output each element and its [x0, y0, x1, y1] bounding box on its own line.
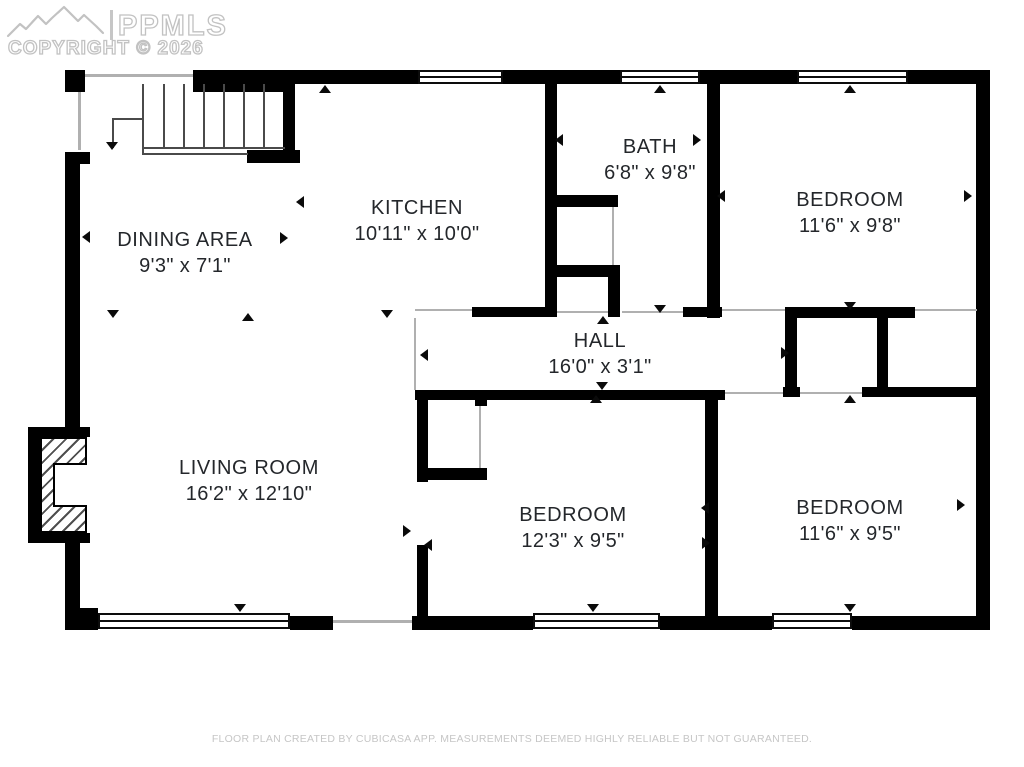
door-arrow-icon [717, 190, 725, 202]
window-pane-line [622, 76, 698, 78]
window-pane-line [420, 76, 501, 78]
room-name: BATH [550, 134, 750, 160]
wall-segment [852, 616, 990, 630]
room-label-bedroom-top-right: BEDROOM 11'6" x 9'8" [750, 187, 950, 239]
wall-segment [65, 70, 85, 92]
window [797, 70, 908, 84]
room-name: LIVING ROOM [148, 455, 350, 481]
stairs-icon [263, 84, 265, 147]
door-arrow-icon [242, 313, 254, 321]
opening-line [333, 620, 412, 623]
window [772, 613, 852, 629]
door-arrow-icon [844, 604, 856, 612]
door-arrow-icon [106, 142, 118, 150]
wall-segment [412, 616, 533, 630]
room-dimensions: 9'3" x 7'1" [85, 253, 285, 279]
room-dimensions: 6'8" x 9'8" [550, 160, 750, 186]
opening-line [78, 92, 81, 150]
room-name: KITCHEN [317, 195, 517, 221]
room-label-bedroom-bottom-right: BEDROOM 11'6" x 9'5" [750, 495, 950, 547]
opening-line [479, 406, 481, 468]
opening-line [557, 311, 608, 313]
wall-segment [545, 84, 557, 308]
stairs-icon [112, 118, 144, 120]
wall-segment [65, 152, 90, 164]
room-dimensions: 10'11" x 10'0" [317, 221, 517, 247]
footer-disclaimer: FLOOR PLAN CREATED BY CUBICASA APP. MEAS… [0, 733, 1024, 745]
window-pane-line [799, 76, 906, 78]
door-arrow-icon [234, 604, 246, 612]
stairs-icon [163, 84, 165, 147]
door-arrow-icon [403, 525, 411, 537]
room-name: BEDROOM [473, 502, 673, 528]
door-arrow-icon [555, 134, 563, 146]
wall-segment [608, 265, 620, 317]
room-name: HALL [500, 328, 700, 354]
opening-line [915, 309, 977, 311]
door-arrow-icon [420, 349, 428, 361]
door-arrow-icon [693, 134, 701, 146]
copyright-text: COPYRIGHT © 2026 [8, 38, 204, 60]
wall-segment [28, 427, 40, 543]
floor-plan-canvas: PPMLS COPYRIGHT © 2026 DINING AREA 9'3" … [0, 0, 1024, 767]
window [620, 70, 700, 84]
logo-divider [110, 10, 113, 40]
stairs-icon [223, 84, 225, 147]
door-arrow-icon [701, 502, 709, 514]
door-arrow-icon [654, 305, 666, 313]
opening-line [415, 309, 472, 311]
window [98, 613, 290, 629]
wall-segment [700, 70, 797, 84]
mountain-logo-icon [6, 4, 106, 38]
door-arrow-icon [296, 196, 304, 208]
door-arrow-icon [844, 85, 856, 93]
door-arrow-icon [82, 231, 90, 243]
door-arrow-icon [381, 310, 393, 318]
window-pane-line [774, 620, 850, 622]
wall-segment [683, 307, 722, 317]
door-arrow-icon [844, 395, 856, 403]
opening-line [725, 392, 783, 394]
wall-segment [877, 318, 888, 390]
door-arrow-icon [424, 539, 432, 551]
room-dimensions: 11'6" x 9'5" [750, 521, 950, 547]
room-dimensions: 12'3" x 9'5" [473, 528, 673, 554]
door-arrow-icon [964, 190, 972, 202]
wall-segment [65, 152, 80, 427]
wall-segment [472, 307, 557, 317]
stairs-icon [203, 84, 205, 147]
wall-segment [415, 390, 725, 400]
wall-segment [65, 543, 80, 616]
window-pane-line [535, 620, 658, 622]
opening-line [800, 392, 862, 394]
wall-segment [193, 70, 418, 84]
room-name: BEDROOM [750, 495, 950, 521]
window [533, 613, 660, 629]
door-arrow-icon [587, 604, 599, 612]
room-label-dining-area: DINING AREA 9'3" x 7'1" [85, 227, 285, 279]
opening-line [612, 207, 614, 265]
watermark: PPMLS COPYRIGHT © 2026 [6, 4, 326, 43]
stairs-icon [142, 147, 285, 149]
door-arrow-icon [280, 232, 288, 244]
room-label-bedroom-middle: BEDROOM 12'3" x 9'5" [473, 502, 673, 554]
room-label-kitchen: KITCHEN 10'11" x 10'0" [317, 195, 517, 247]
wall-segment [417, 545, 428, 616]
room-name: DINING AREA [85, 227, 285, 253]
door-arrow-icon [319, 85, 331, 93]
wall-segment [475, 398, 487, 406]
room-label-hall: HALL 16'0" x 3'1" [500, 328, 700, 380]
wall-segment [28, 533, 90, 543]
stairs-icon [142, 153, 248, 155]
wall-segment [290, 616, 333, 630]
wall-segment [976, 70, 990, 630]
opening-line [85, 74, 193, 77]
wall-segment [783, 387, 800, 397]
wall-segment [417, 468, 487, 480]
room-label-living-room: LIVING ROOM 16'2" x 12'10" [148, 455, 350, 507]
door-arrow-icon [781, 347, 789, 359]
window [418, 70, 503, 84]
window-pane-line [100, 620, 288, 622]
room-label-bath: BATH 6'8" x 9'8" [550, 134, 750, 186]
door-arrow-icon [844, 302, 856, 310]
door-arrow-icon [107, 310, 119, 318]
stairs-icon [243, 84, 245, 147]
opening-line [622, 311, 683, 313]
wall-segment [503, 70, 620, 84]
wall-segment [247, 150, 300, 163]
wall-segment [557, 195, 618, 207]
door-arrow-icon [590, 395, 602, 403]
room-dimensions: 16'0" x 3'1" [500, 354, 700, 380]
door-arrow-icon [957, 499, 965, 511]
room-dimensions: 11'6" x 9'8" [750, 213, 950, 239]
door-arrow-icon [597, 316, 609, 324]
wall-segment [660, 616, 772, 630]
opening-line [722, 309, 785, 311]
opening-line [414, 318, 416, 390]
wall-segment [862, 387, 990, 397]
room-name: BEDROOM [750, 187, 950, 213]
door-arrow-icon [702, 537, 710, 549]
room-dimensions: 16'2" x 12'10" [148, 481, 350, 507]
door-arrow-icon [596, 382, 608, 390]
wall-segment [193, 84, 287, 92]
stairs-icon [183, 84, 185, 147]
door-arrow-icon [654, 85, 666, 93]
firebox [53, 463, 87, 507]
